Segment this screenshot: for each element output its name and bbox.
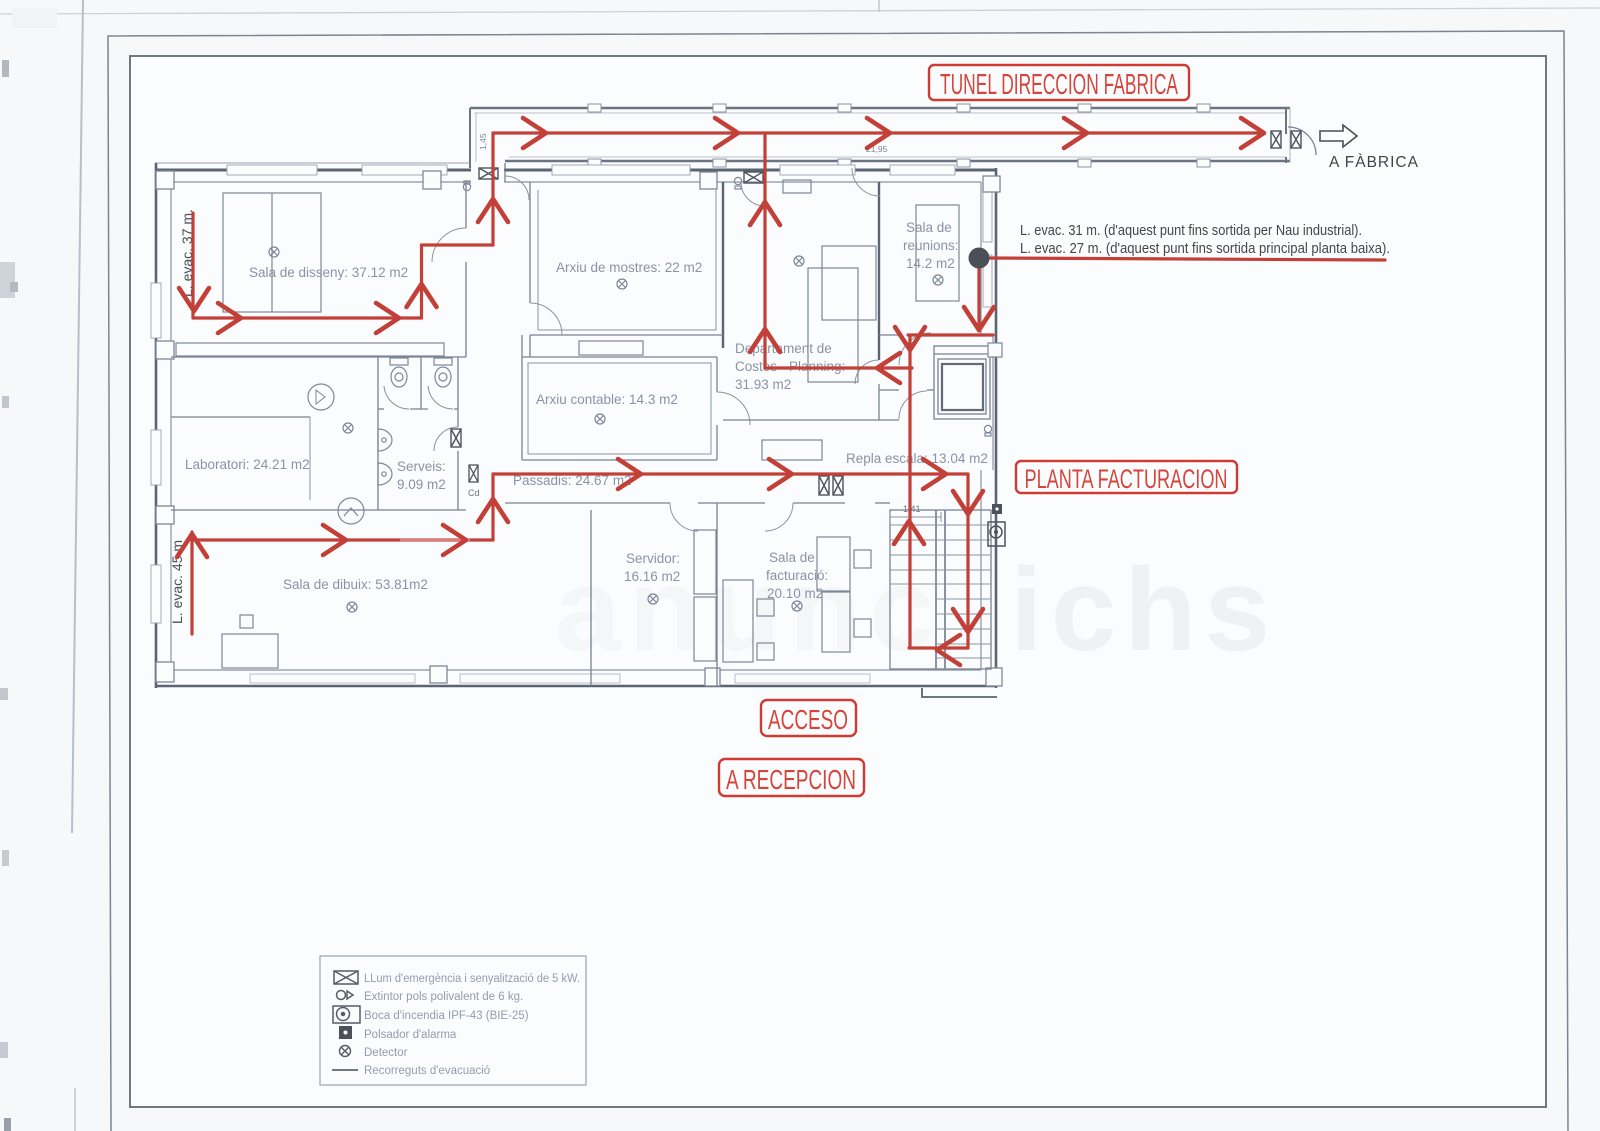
svg-text:31.93 m2: 31.93 m2 <box>735 377 791 392</box>
svg-text:Cd: Cd <box>468 488 480 498</box>
svg-text:20.10 m2: 20.10 m2 <box>767 586 823 601</box>
svg-text:Arxiu de mostres: 22 m2: Arxiu de mostres: 22 m2 <box>556 260 702 275</box>
svg-text:Detector: Detector <box>364 1047 408 1059</box>
svg-text:ichs: ichs <box>1010 544 1278 676</box>
svg-text:Sala de: Sala de <box>906 220 952 235</box>
svg-text:anunc: anunc <box>555 544 943 676</box>
svg-text:facturació:: facturació: <box>766 568 828 583</box>
svg-text:Servidor:: Servidor: <box>626 551 680 566</box>
svg-text:L. evac. 31 m. (d'aquest punt: L. evac. 31 m. (d'aquest punt fins sorti… <box>1020 223 1362 239</box>
svg-text:Extintor pols polivalent de 6: Extintor pols polivalent de 6 kg. <box>364 991 523 1003</box>
svg-text:TUNEL DIRECCION FABRICA: TUNEL DIRECCION FABRICA <box>940 69 1178 101</box>
svg-text:1,41: 1,41 <box>903 504 921 514</box>
svg-text:A FÀBRICA: A FÀBRICA <box>1329 154 1419 171</box>
svg-text:Repla escala: 13.04 m2: Repla escala: 13.04 m2 <box>846 451 988 466</box>
svg-text:LLum d'emergència i senyalitza: LLum d'emergència i senyalització de 5 k… <box>364 973 580 985</box>
svg-text:reunions:: reunions: <box>903 238 959 253</box>
svg-text:Laboratori: 24.21 m2: Laboratori: 24.21 m2 <box>185 457 310 472</box>
svg-text:Serveis:: Serveis: <box>397 459 446 474</box>
svg-text:Polsador d'alarma: Polsador d'alarma <box>364 1029 457 1041</box>
svg-text:1,45: 1,45 <box>478 133 488 150</box>
svg-text:Sala de: Sala de <box>769 550 815 565</box>
svg-text:L. evac. 27 m. (d'aquest punt: L. evac. 27 m. (d'aquest punt fins sorti… <box>1020 241 1390 257</box>
svg-text:Arxiu contable: 14.3 m2: Arxiu contable: 14.3 m2 <box>536 392 678 407</box>
svg-text:9.09 m2: 9.09 m2 <box>397 477 446 492</box>
svg-text:PLANTA FACTURACION: PLANTA FACTURACION <box>1025 464 1228 494</box>
svg-text:16.16 m2: 16.16 m2 <box>624 569 680 584</box>
svg-text:14.2 m2: 14.2 m2 <box>906 256 955 271</box>
svg-text:Sala de disseny: 37.12 m2: Sala de disseny: 37.12 m2 <box>249 265 408 280</box>
svg-text:Sala de dibuix: 53.81m2: Sala de dibuix: 53.81m2 <box>283 577 428 592</box>
svg-text:ACCESO: ACCESO <box>768 704 848 735</box>
svg-text:Recorreguts d'evacuació: Recorreguts d'evacuació <box>364 1065 490 1077</box>
svg-text:A RECEPCION: A RECEPCION <box>726 764 856 795</box>
svg-text:Boca d'incendia IPF-43 (BIE-25: Boca d'incendia IPF-43 (BIE-25) <box>364 1010 529 1022</box>
